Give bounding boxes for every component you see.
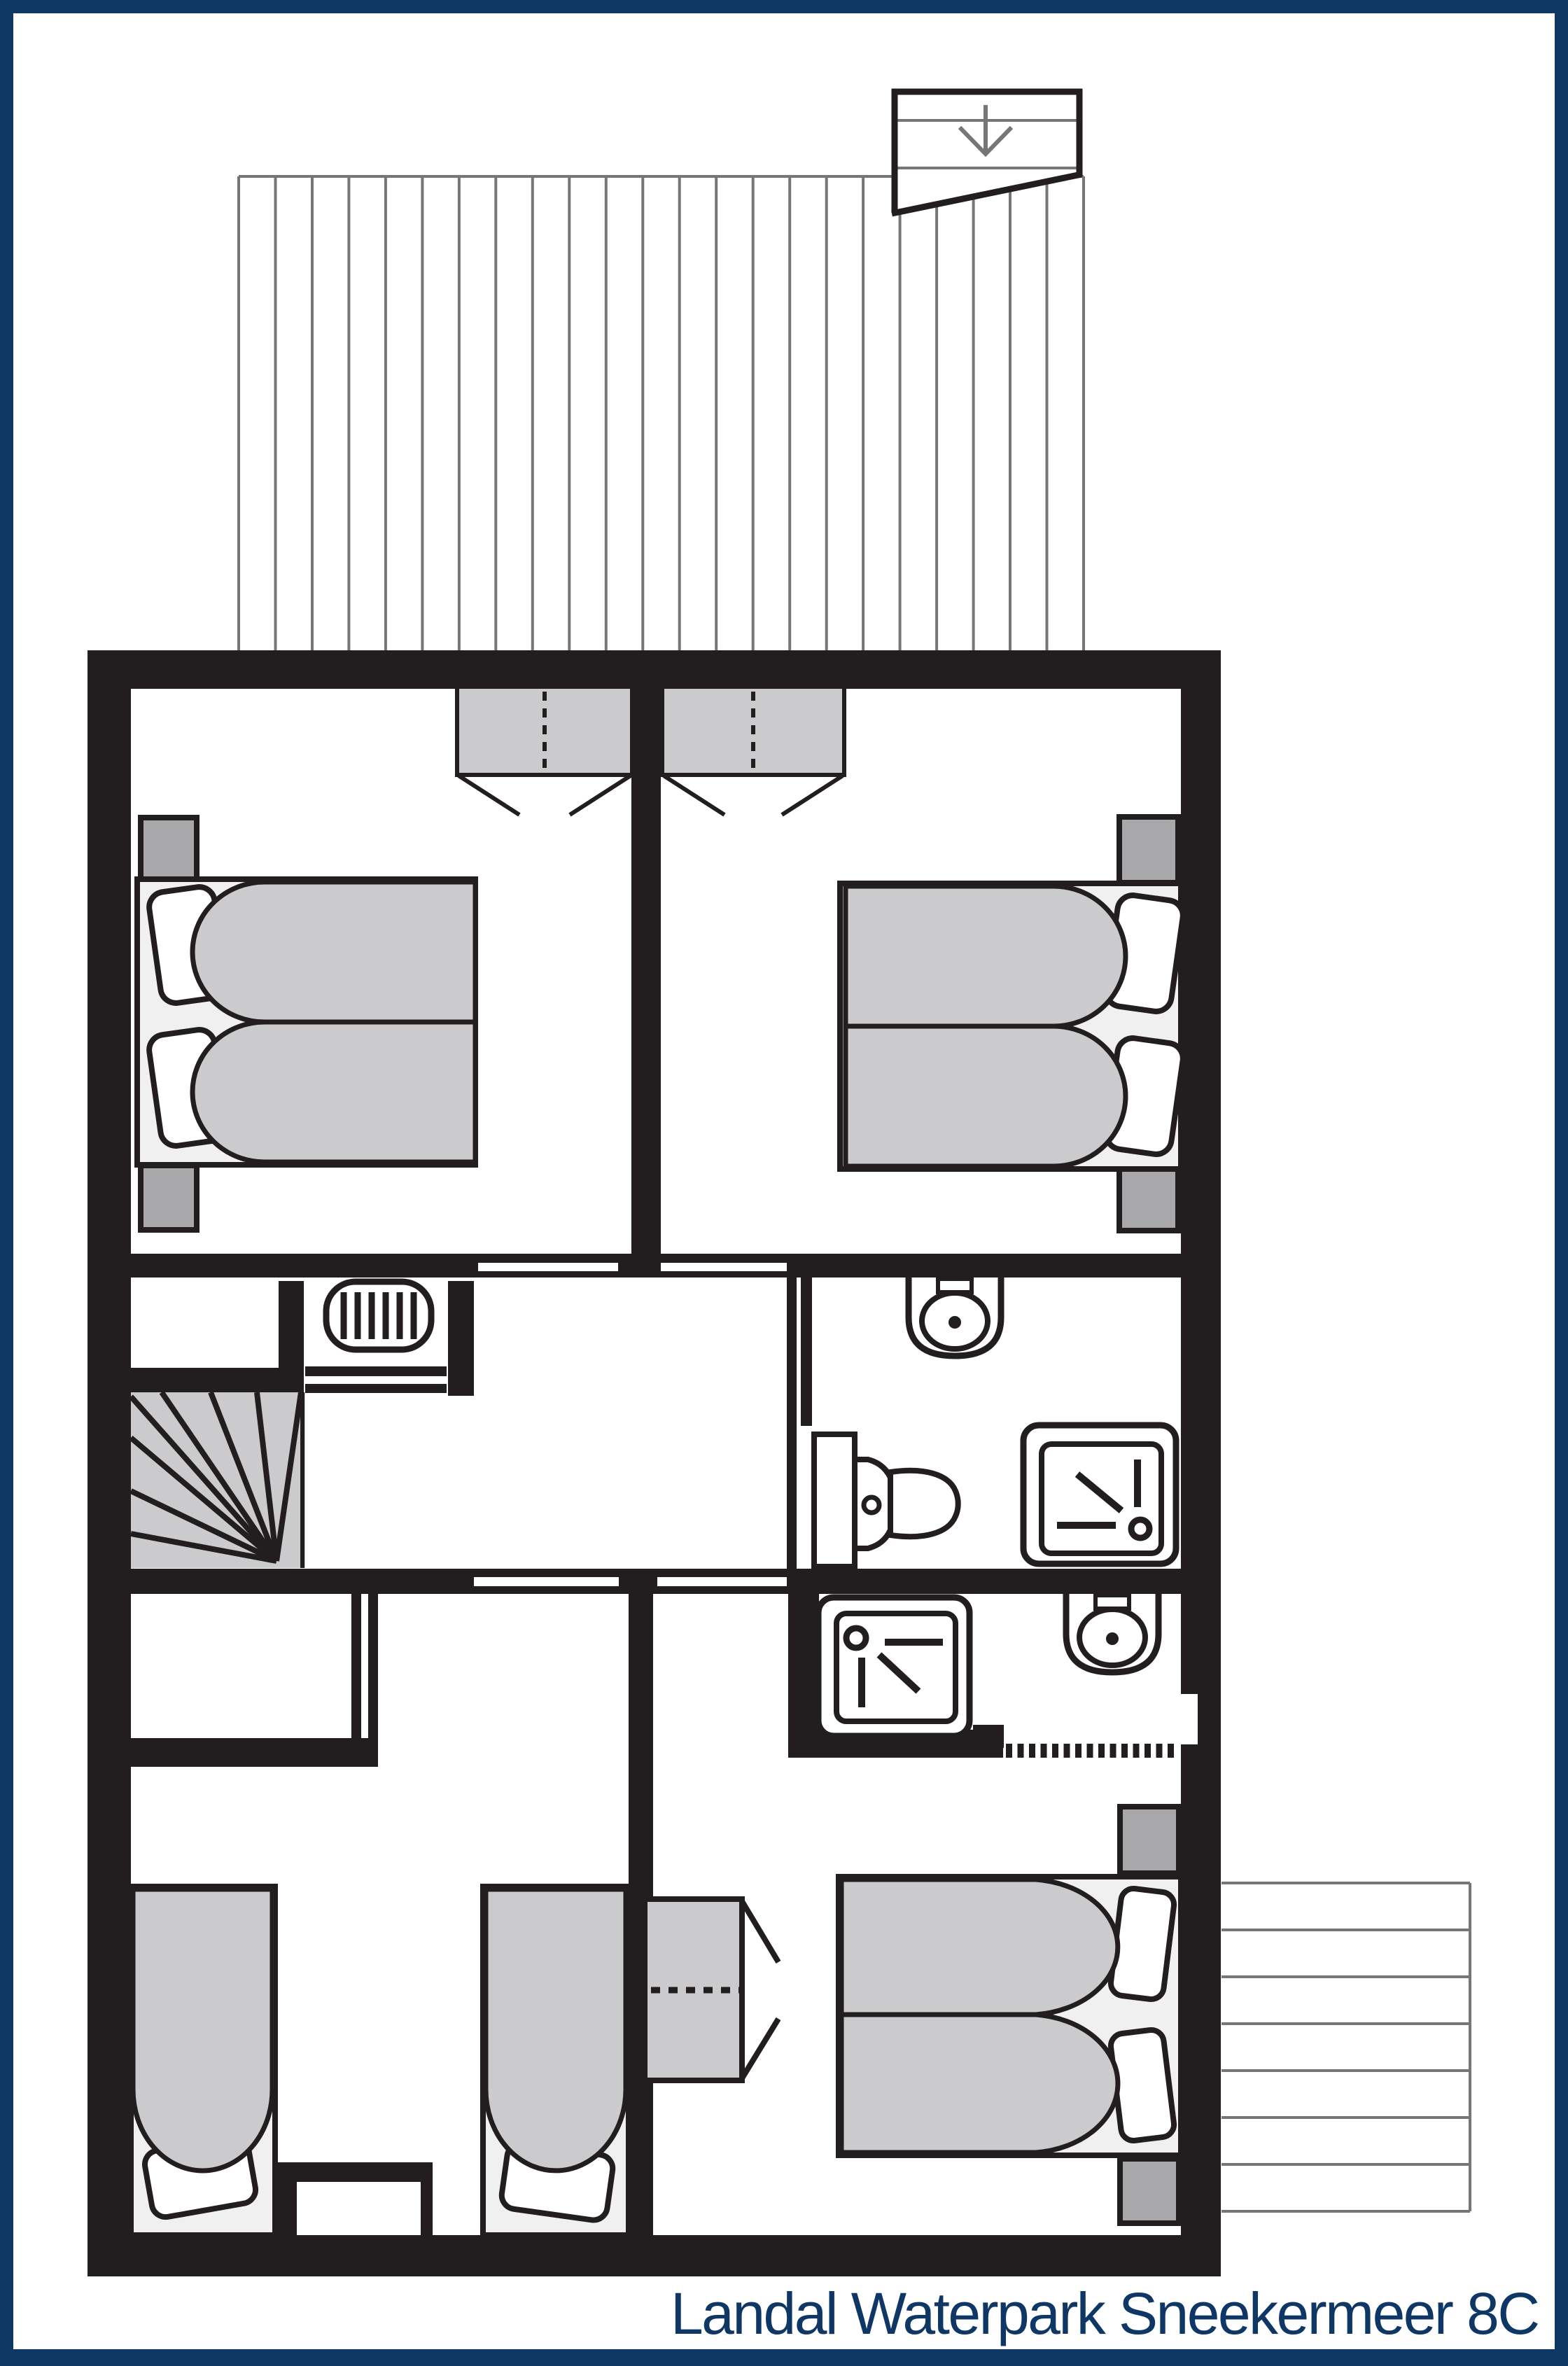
svg-text:Landal Waterpark Sneekermeer 8: Landal Waterpark Sneekermeer 8C [671,2281,1540,2346]
